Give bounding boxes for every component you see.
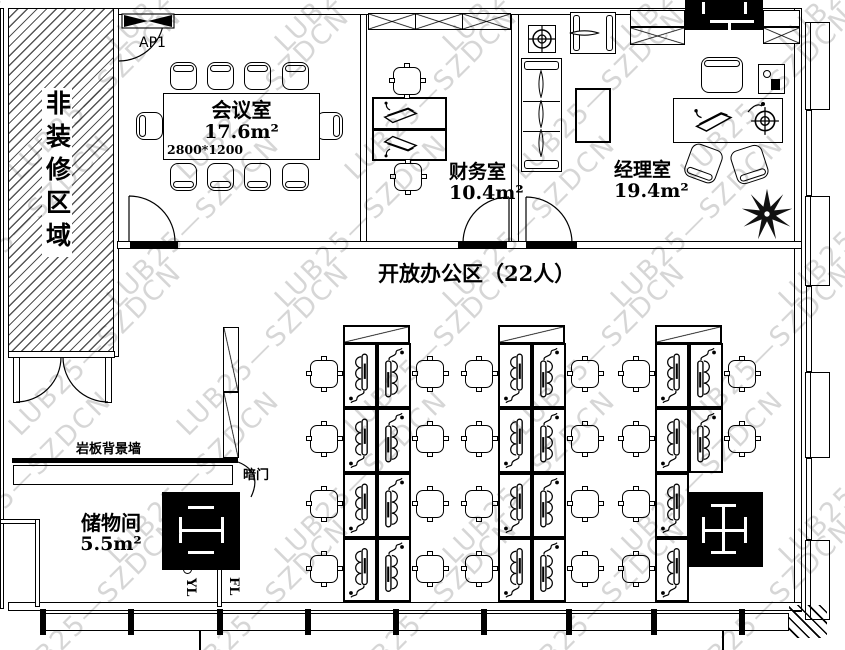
office-chair <box>571 555 599 583</box>
executive-chair <box>701 57 743 93</box>
office-chair <box>465 490 493 518</box>
chair-armrest <box>582 551 588 556</box>
chair-armrest <box>404 63 410 68</box>
chair-armrest <box>337 566 343 571</box>
hatch-border-wall <box>113 8 119 357</box>
exterior-wall-right <box>794 8 802 612</box>
workstation-icon <box>379 542 408 598</box>
chair-armrest <box>582 387 588 392</box>
cushion-icon <box>535 70 547 98</box>
workstation-icon <box>534 477 563 534</box>
chair-armrest <box>443 371 449 376</box>
chair-armrest <box>412 436 418 441</box>
office-chair <box>622 360 650 388</box>
chair-armrest <box>390 174 396 179</box>
chair-armrest <box>492 501 498 506</box>
yl-label: YL <box>183 578 198 596</box>
office-chair <box>728 425 756 453</box>
beam-mark <box>702 2 705 14</box>
conference-chair <box>282 163 309 191</box>
chair-armrest <box>476 486 482 491</box>
laptop-icon <box>688 102 738 138</box>
chair-armrest <box>633 421 639 426</box>
chair-armrest <box>427 517 433 522</box>
chair-armrest <box>306 436 312 441</box>
desk-bank-header <box>343 325 410 344</box>
window-post <box>393 609 399 635</box>
chair-armrest <box>427 356 433 361</box>
window-post <box>481 609 487 635</box>
chair-armrest <box>598 371 604 376</box>
conference-chair <box>244 163 271 191</box>
chair-armrest <box>739 387 745 392</box>
chair-armrest <box>618 371 624 376</box>
chair-armrest <box>337 371 343 376</box>
chair-armrest <box>461 436 467 441</box>
chair-armrest <box>427 452 433 457</box>
conference-chair <box>170 62 197 90</box>
armrest <box>606 15 613 51</box>
beam-mark <box>188 551 214 554</box>
beam-mark <box>728 22 731 30</box>
chair-armrest <box>598 566 604 571</box>
chair-armrest <box>476 421 482 426</box>
chair-armrest <box>476 517 482 522</box>
workstation-icon <box>500 412 529 469</box>
chair-armrest <box>649 501 655 506</box>
desk-bank-header <box>498 325 565 344</box>
cushion-icon <box>570 27 600 40</box>
corner-mullion <box>789 605 827 638</box>
hatch-bottom-wall <box>8 351 115 358</box>
chair-armrest <box>405 159 411 164</box>
chair-armrest <box>739 356 745 361</box>
chair-armrest <box>427 421 433 426</box>
conference-chair <box>282 62 309 90</box>
office-chair <box>310 490 338 518</box>
chair-armrest <box>321 356 327 361</box>
office-chair <box>622 490 650 518</box>
chair-armrest <box>443 501 449 506</box>
beam-mark <box>744 2 747 14</box>
chair-armrest <box>427 582 433 587</box>
manager-room-area: 19.4m² <box>614 181 689 202</box>
chair-armrest <box>321 452 327 457</box>
storage-room-area: 5.5m² <box>68 534 154 555</box>
floor-plan: 非装修区域 AP1 会议室 17.6m² 2800*1200 财务室 10.4m… <box>0 0 845 650</box>
chair-armrest <box>739 421 745 426</box>
storage-counter <box>13 465 233 485</box>
non-renovation-label: 非装修区域 <box>42 88 72 257</box>
chair-armrest <box>492 566 498 571</box>
office-chair <box>416 555 444 583</box>
window <box>805 372 830 458</box>
office-chair <box>571 425 599 453</box>
chair-armrest <box>618 566 624 571</box>
office-chair <box>465 360 493 388</box>
workstation-icon <box>657 542 686 598</box>
window-post <box>739 609 745 635</box>
window-post <box>566 609 572 635</box>
chair-armrest <box>321 387 327 392</box>
chair-armrest <box>567 566 573 571</box>
x-cabinet <box>368 13 416 30</box>
chair-armrest <box>633 356 639 361</box>
chair-armrest <box>476 582 482 587</box>
office-chair <box>416 360 444 388</box>
beam-mark <box>182 529 221 532</box>
chair-armrest <box>427 486 433 491</box>
chair-armrest <box>421 174 427 179</box>
chair-armrest <box>443 436 449 441</box>
x-cabinet <box>763 27 800 44</box>
chair-armrest <box>492 371 498 376</box>
chair-armrest <box>724 436 730 441</box>
chair-armrest <box>598 501 604 506</box>
chair-armrest <box>412 501 418 506</box>
grid-tick <box>199 631 201 650</box>
chair-armrest <box>321 517 327 522</box>
watermark-text: LUB25—SZDCN <box>171 257 356 442</box>
x-cabinet <box>630 27 685 45</box>
desk-side-cabinet <box>758 64 785 94</box>
chair-armrest <box>321 551 327 556</box>
chair-armrest <box>649 566 655 571</box>
x-cabinet <box>415 13 463 30</box>
chair-armrest <box>567 436 573 441</box>
office-chair <box>571 360 599 388</box>
chair-armrest <box>412 566 418 571</box>
chair-armrest <box>476 452 482 457</box>
chair-armrest <box>306 371 312 376</box>
chair-armrest <box>582 486 588 491</box>
conference-table-size: 2800*1200 <box>167 143 243 157</box>
chair-armrest <box>618 436 624 441</box>
finance-door-leaf <box>458 241 507 249</box>
office-chair <box>310 360 338 388</box>
conference-finance-wall <box>360 14 367 246</box>
manager-door-leaf <box>526 241 577 249</box>
workstation-icon <box>657 477 686 534</box>
office-chair <box>394 163 422 191</box>
rock-slab-wall <box>12 458 238 463</box>
plant-icon <box>740 186 794 242</box>
chair-armrest <box>405 190 411 195</box>
beam-mark <box>188 506 214 509</box>
workstation-icon <box>500 542 529 598</box>
beam-mark <box>722 506 725 552</box>
manager-cabinet <box>763 10 800 27</box>
storage-room-name: 储物间 <box>68 512 154 534</box>
chair-armrest <box>633 582 639 587</box>
kettle-icon <box>763 70 771 78</box>
chair-armrest <box>649 371 655 376</box>
chair-armrest <box>724 371 730 376</box>
window-mullion <box>806 458 812 540</box>
window-post <box>305 609 311 635</box>
window-post <box>217 609 223 635</box>
workstation-icon <box>500 477 529 534</box>
chair-armrest <box>321 582 327 587</box>
workstation-icon <box>534 347 563 404</box>
chair-armrest <box>492 436 498 441</box>
sofa-armrest <box>524 61 559 70</box>
ap-bowtie-icon <box>122 14 174 28</box>
chair-armrest <box>337 436 343 441</box>
office-chair <box>416 425 444 453</box>
conference-room-area: 17.6m² <box>164 122 319 143</box>
workstation-icon <box>691 412 720 469</box>
tall-cabinet <box>223 392 239 458</box>
conference-chair <box>136 112 163 140</box>
workstation-icon <box>691 347 720 404</box>
window-band <box>40 613 789 631</box>
chair-armrest <box>420 78 426 83</box>
finance-room-area: 10.4m² <box>449 183 524 204</box>
beam-mark <box>221 517 224 543</box>
conference-door-leaf <box>130 241 178 249</box>
office-chair <box>622 555 650 583</box>
chair-armrest <box>618 501 624 506</box>
workstation-icon <box>345 542 374 598</box>
guest-chair <box>728 143 770 186</box>
chair-armrest <box>598 436 604 441</box>
workstation-icon <box>534 412 563 469</box>
finance-room-name: 财务室 <box>449 162 524 183</box>
storage-alcove-wall <box>35 519 40 607</box>
entry-door-panel <box>105 357 112 403</box>
storage-room-label: 储物间 5.5m² <box>68 512 154 555</box>
chair-armrest <box>633 387 639 392</box>
grid-tick <box>722 631 724 650</box>
phone-icon <box>771 79 780 90</box>
chair-armrest <box>582 452 588 457</box>
manager-cabinet <box>630 10 685 27</box>
beam-mark <box>705 529 745 532</box>
conference-chair <box>207 62 234 90</box>
conference-chair <box>244 62 271 90</box>
x-cabinet <box>462 13 511 30</box>
workstation-icon <box>657 412 686 469</box>
chair-armrest <box>321 486 327 491</box>
rock-wall-label: 岩板背景墙 <box>76 443 141 457</box>
chair-armrest <box>306 501 312 506</box>
chair-armrest <box>461 371 467 376</box>
chair-armrest <box>567 371 573 376</box>
office-chair <box>416 490 444 518</box>
window-post <box>651 609 657 635</box>
workstation-icon <box>657 347 686 404</box>
workstation-icon <box>345 477 374 534</box>
hidden-door-label: 暗门 <box>243 469 269 483</box>
chair-armrest <box>633 517 639 522</box>
finance-manager-wall <box>511 14 519 246</box>
chair-armrest <box>427 551 433 556</box>
conference-room-name: 会议室 <box>164 99 319 121</box>
conference-chair <box>316 112 343 140</box>
chair-armrest <box>476 356 482 361</box>
entry-door-panel <box>13 357 20 403</box>
chair-armrest <box>461 501 467 506</box>
chair-armrest <box>404 94 410 99</box>
chair-armrest <box>633 551 639 556</box>
chair-armrest <box>412 371 418 376</box>
window-mullion <box>806 286 812 372</box>
window-post <box>40 609 46 635</box>
coffee-table <box>575 88 611 143</box>
workstation-icon <box>534 542 563 598</box>
chair-armrest <box>582 582 588 587</box>
workstation-icon <box>500 347 529 404</box>
finance-room-label: 财务室 10.4m² <box>449 162 524 204</box>
cushion-icon <box>535 129 547 157</box>
window <box>805 22 830 110</box>
workstation-icon <box>345 412 374 469</box>
storage-alcove-wall <box>0 519 39 524</box>
laptop-icon <box>378 132 422 159</box>
fl-label: FL <box>226 577 241 595</box>
office-chair <box>465 425 493 453</box>
beam-mark <box>710 20 754 23</box>
desk-bank-header <box>655 325 722 344</box>
chair-armrest <box>476 387 482 392</box>
crosshair-icon <box>750 106 780 136</box>
conference-chair <box>170 163 197 191</box>
chair-armrest <box>321 421 327 426</box>
chair-armrest <box>649 436 655 441</box>
chair-armrest <box>567 501 573 506</box>
laptop-icon <box>378 100 422 127</box>
conference-table: 会议室 17.6m² 2800*1200 <box>163 93 320 160</box>
storage-door-jamb <box>217 568 222 607</box>
chair-armrest <box>443 566 449 571</box>
chair-armrest <box>755 371 761 376</box>
office-chair <box>728 360 756 388</box>
chair-armrest <box>755 436 761 441</box>
office-chair <box>622 425 650 453</box>
window-post <box>128 609 134 635</box>
office-chair <box>571 490 599 518</box>
manager-room-label: 经理室 19.4m² <box>614 160 689 202</box>
chair-armrest <box>306 566 312 571</box>
chair-armrest <box>582 517 588 522</box>
workstation-icon <box>379 412 408 469</box>
conference-chair <box>207 163 234 191</box>
chair-armrest <box>582 421 588 426</box>
chair-armrest <box>739 452 745 457</box>
chair-armrest <box>461 566 467 571</box>
chair-armrest <box>582 356 588 361</box>
workstation-icon <box>379 477 408 534</box>
workstation-icon <box>345 347 374 404</box>
chair-armrest <box>427 387 433 392</box>
chair-armrest <box>389 78 395 83</box>
ap-label: AP1 <box>139 36 166 51</box>
chair-armrest <box>337 501 343 506</box>
sofa-armrest <box>524 160 559 169</box>
office-chair <box>465 555 493 583</box>
office-chair <box>310 555 338 583</box>
manager-room-name: 经理室 <box>614 160 689 181</box>
office-chair <box>393 67 421 95</box>
cushion-icon <box>535 100 547 128</box>
window <box>805 196 830 286</box>
office-chair <box>310 425 338 453</box>
entry-black-unit <box>685 0 763 30</box>
tall-cabinet <box>223 327 239 392</box>
crosshair-icon <box>528 25 556 53</box>
workstation-icon <box>379 347 408 404</box>
window-mullion <box>806 110 812 196</box>
chair-armrest <box>476 551 482 556</box>
chair-armrest <box>633 486 639 491</box>
chair-armrest <box>633 452 639 457</box>
open-office-label: 开放办公区（22人） <box>378 262 575 285</box>
